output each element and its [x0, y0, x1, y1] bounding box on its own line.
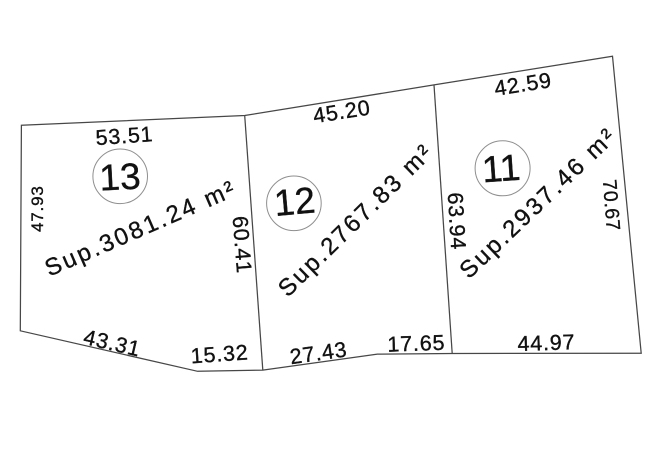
svg-text:11: 11: [481, 147, 522, 191]
svg-text:45.20: 45.20: [311, 95, 372, 128]
svg-text:63.94: 63.94: [443, 192, 470, 251]
svg-text:42.59: 42.59: [493, 68, 554, 101]
svg-text:60.41: 60.41: [228, 215, 256, 275]
svg-text:43.31: 43.31: [81, 325, 143, 361]
svg-text:53.51: 53.51: [95, 122, 154, 150]
svg-text:15.32: 15.32: [190, 340, 249, 368]
svg-text:70.67: 70.67: [598, 179, 624, 232]
svg-text:17.65: 17.65: [387, 331, 446, 357]
svg-text:44.97: 44.97: [517, 330, 576, 356]
svg-text:13: 13: [98, 156, 141, 199]
svg-text:47.93: 47.93: [28, 185, 47, 232]
svg-text:27.43: 27.43: [288, 337, 349, 369]
svg-text:12: 12: [272, 180, 317, 224]
svg-text:Sup.2937.46 m²: Sup.2937.46 m²: [454, 122, 622, 284]
